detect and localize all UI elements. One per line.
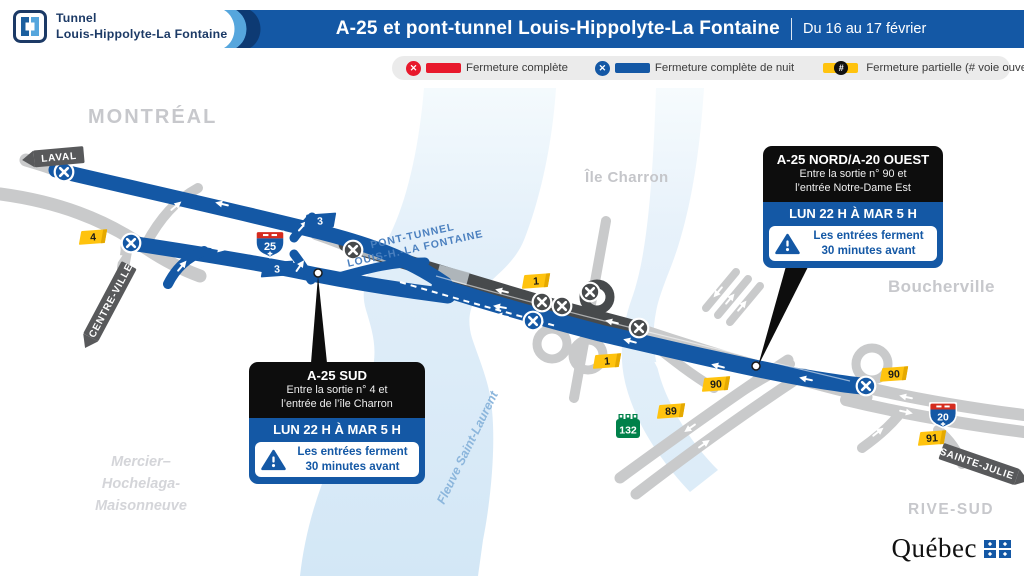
label-montreal: MONTRÉAL [88, 105, 217, 128]
road-direction-arrow [669, 378, 684, 391]
exit-number-tab: 89 [656, 403, 686, 419]
logo-line2: Louis-Hippolyte-La Fontaine [56, 27, 227, 42]
svg-text:89: 89 [665, 405, 678, 418]
callout-schedule-section: LUN 22 H À MAR 5 H Les entrées ferment 3… [763, 202, 943, 268]
night-closure-x-icon [857, 377, 876, 396]
callout-anchor-right [752, 362, 760, 370]
closure-x-icon [533, 293, 552, 312]
closure-x-icon: ✕ [406, 61, 421, 76]
page-title: A-25 et pont-tunnel Louis-Hippolyte-La F… [336, 18, 780, 40]
warning-icon [775, 233, 800, 255]
label-boucherville: Boucherville [888, 277, 995, 296]
callout-a25-nord-a20-ouest: A-25 NORD/A-20 OUEST Entre la sortie n° … [763, 146, 943, 268]
title-divider [791, 18, 792, 40]
legend-item-partial-closure: # Fermeture partielle (# voie ouverte) [821, 60, 1024, 76]
label-ile-charron: Île Charron [584, 168, 669, 186]
svg-text:1: 1 [533, 275, 540, 287]
callout-pointer-right [758, 259, 812, 366]
closure-map: 4331190899091 25 20 132 LAVAL [0, 0, 1024, 576]
exit-number-tab: 3 [303, 213, 338, 230]
full-closure-bar-icon [426, 63, 461, 73]
svg-text:Maisonneuve: Maisonneuve [95, 498, 187, 514]
svg-text:1: 1 [604, 355, 611, 367]
exit-number-tab: 91 [917, 430, 947, 446]
warning-icon [261, 449, 286, 471]
callout-line: Entre la sortie n° 4 et [252, 383, 422, 397]
river-west-channel [300, 88, 556, 576]
callout-pointer-left [311, 276, 327, 363]
tunnel-logo-icon [13, 10, 47, 43]
schedule-text: LUN 22 H À MAR 5 H [255, 420, 419, 442]
svg-text:Hochelaga-: Hochelaga- [102, 476, 180, 492]
label-rive-sud: RIVE-SUD [908, 501, 994, 518]
exit-number-tab: 90 [701, 376, 731, 392]
callout-line: Entre la sortie n° 90 et [766, 167, 940, 181]
partial-closure-bar-icon: # [821, 60, 861, 76]
exit-number-tab: 1 [521, 273, 551, 289]
autoroute-25-shield: 25 [255, 231, 285, 259]
night-closure-x-icon [122, 234, 141, 253]
legend-label: Fermeture complète de nuit [655, 62, 794, 74]
schedule-text: LUN 22 H À MAR 5 H [769, 204, 937, 226]
svg-text:CENTRE-VILLE: CENTRE-VILLE [87, 262, 135, 340]
route-132-shield: 132 [616, 414, 640, 438]
svg-text:3: 3 [274, 263, 281, 275]
warning-box: Les entrées ferment 30 minutes avant [769, 226, 937, 261]
callout-line: l’entrée de l’île Charron [252, 397, 422, 411]
callout-header: A-25 NORD/A-20 OUEST Entre la sortie n° … [763, 146, 943, 202]
date-range: Du 16 au 17 février [803, 21, 926, 37]
quebec-flag-icon [984, 540, 1011, 558]
svg-text:91: 91 [926, 432, 939, 445]
svg-text:25: 25 [264, 241, 276, 253]
callout-schedule-section: LUN 22 H À MAR 5 H Les entrées ferment 3… [249, 418, 425, 484]
callout-title: A-25 SUD [252, 368, 422, 383]
svg-text:90: 90 [888, 368, 901, 381]
svg-text:90: 90 [710, 378, 723, 391]
legend-label: Fermeture partielle (# voie ouverte) [866, 62, 1024, 74]
callout-anchor-left [314, 269, 322, 277]
callout-header: A-25 SUD Entre la sortie n° 4 et l’entré… [249, 362, 425, 418]
closure-x-icon [630, 319, 649, 338]
warning-box: Les entrées ferment 30 minutes avant [255, 442, 419, 477]
title-banner: A-25 et pont-tunnel Louis-Hippolyte-La F… [238, 10, 1024, 48]
svg-text:20: 20 [937, 413, 949, 424]
exit-number-tab: 3 [260, 261, 295, 278]
svg-text:132: 132 [619, 425, 637, 437]
legend-item-full-closure: ✕ Fermeture complète [406, 61, 568, 76]
quebec-text: Québec [892, 533, 977, 564]
callout-title: A-25 NORD/A-20 OUEST [766, 152, 940, 167]
exit-number-tab: 4 [78, 229, 108, 245]
quebec-wordmark: Québec [892, 533, 1011, 564]
closure-x-icon [581, 283, 600, 302]
closure-x-icon: ✕ [595, 61, 610, 76]
svg-text:Mercier–: Mercier– [111, 454, 171, 470]
night-closure-bar-icon [615, 63, 650, 73]
sainte-julie-sign: SAINTE-JULIE [937, 443, 1024, 489]
exit-number-tab: 1 [592, 353, 622, 369]
night-closure-x-icon [55, 163, 74, 182]
night-closure-x-icon [524, 312, 543, 331]
logo: Tunnel Louis-Hippolyte-La Fontaine [13, 10, 227, 43]
legend: ✕ Fermeture complète ✕ Fermeture complèt… [392, 56, 1010, 80]
header: Tunnel Louis-Hippolyte-La Fontaine A-25 … [0, 0, 1024, 54]
callout-line: l’entrée Notre-Dame Est [766, 181, 940, 195]
svg-text:3: 3 [317, 215, 324, 227]
closure-x-icon [553, 297, 572, 316]
callout-a25-sud: A-25 SUD Entre la sortie n° 4 et l’entré… [249, 362, 425, 484]
warning-text: Les entrées ferment 30 minutes avant [806, 229, 931, 258]
svg-text:4: 4 [90, 231, 97, 243]
banner-arc-decoration [214, 10, 262, 48]
centre-ville-sign: CENTRE-VILLE [78, 260, 138, 352]
exit-number-tab: 90 [879, 366, 909, 382]
label-borough: Mercier– Hochelaga- Maisonneuve [95, 454, 187, 514]
warning-text: Les entrées ferment 30 minutes avant [292, 445, 413, 474]
logo-line1: Tunnel [56, 11, 227, 26]
legend-item-night-closure: ✕ Fermeture complète de nuit [595, 61, 794, 76]
legend-label: Fermeture complète [466, 62, 568, 74]
